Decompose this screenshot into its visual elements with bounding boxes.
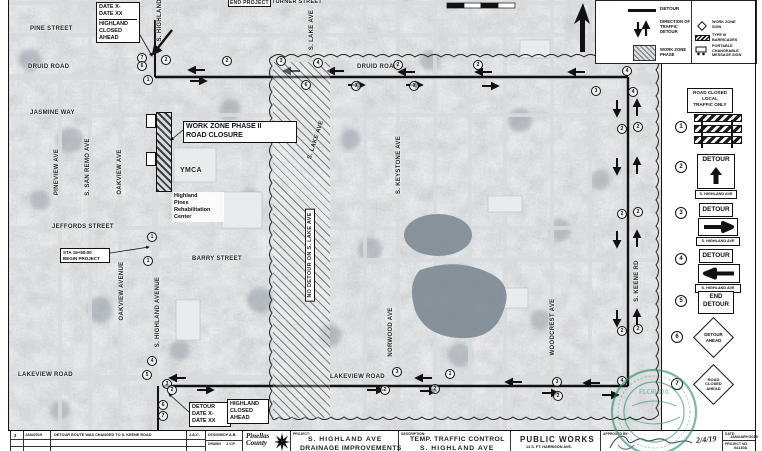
legend: DETOUR DIRECTION OF TRAFFIC DETOUR WORK … [595,0,757,64]
description-line2: S. HIGHLAND AVE [420,445,494,451]
aerial-photo [8,0,661,431]
sign-line: DETOUR [699,301,733,309]
barricade-box [146,152,156,166]
legend-direction-label: DIRECTION OF TRAFFIC DETOUR [660,19,690,34]
legend-line: MESSAGE SIGN [712,53,741,58]
right-arrow-icon [699,219,737,235]
pcms-icon [695,45,709,57]
message-sign-callout-top: DATE X- DATE XX HIGHLAND CLOSED AHEAD [96,2,140,43]
street-label-lake-top: S. LAKE AVE [309,10,315,50]
street-label-highland-south: S. HIGHLAND AVENUE [155,277,161,347]
message-sign-callout-bottom-detour: DETOUR DATE X- DATE XX [189,402,231,427]
sign-line: END [699,293,733,301]
project-line2: DRAINAGE IMPROVEMENTS [300,445,402,451]
street-label-keystone: S. KEYSTONE AVE [396,136,402,194]
begin-project-callout: STA 15+50.00 BEGIN PROJECT [60,248,110,263]
callout-line: WORK ZONE PHASE II [186,123,294,132]
work-zone-phase2-callout: WORK ZONE PHASE II ROAD CLOSURE [183,121,297,143]
sign-marker: 1 [143,75,153,85]
department-name: PUBLIC WORKS [520,435,595,444]
callout-line: AHEAD [99,35,137,42]
sign-number-7: 7 [671,378,683,390]
street-label-barry: BARRY STREET [192,256,242,262]
project-line1: S. HIGHLAND AVE [308,436,382,443]
street-label-keene: S. KEENE RD [634,260,640,302]
work-zone-sign-icon [696,20,708,32]
revision-description: DETOUR ROUTE WAS CHANGED TO S. KEENE ROA… [54,433,152,437]
sign-marker: 1 [143,256,153,266]
sign-marker: 2 [617,209,627,219]
legend-detour-label: DETOUR [660,6,679,12]
sign-marker: 3 [591,86,601,96]
sign-marker: 2 [633,324,643,334]
end-detour-sign: END DETOUR [698,291,734,314]
sign-number-4: 4 [675,253,687,265]
detour-sign: DETOUR [699,203,733,217]
drawn-label: DRAWN [208,442,221,446]
legend-pcms-label: PORTABLE CHANGEABLE MESSAGE SIGN [712,44,741,58]
project-no-value: 04130A [734,446,747,450]
ymca-label: YMCA [180,167,202,174]
sign-marker: 4 [313,58,323,68]
type3-barricade-legend-icon [695,35,710,41]
direction-arrows-icon [630,16,654,42]
street-label-sanremo: S. SAN REMO AVE [85,138,91,196]
callout-line: BEGIN PROJECT [63,256,107,262]
callout-line: Pines [174,200,222,207]
sign-marker: 1 [147,232,157,242]
detour-line-sample [628,9,656,12]
barricade-box [146,114,156,128]
sign-marker: 3 [351,81,361,91]
callout-line: Rehabilitation [174,207,222,214]
sign-marker: 3 [409,81,419,91]
revision-row-divider [10,446,205,447]
street-label-woodcrest: WOODCREST AVE [550,299,556,356]
revision-date: JAN/2019 [25,433,42,437]
work-zone-phase2-area [156,112,172,192]
sign-number-1: 1 [675,121,687,133]
sign-marker: 2 [617,124,627,134]
sign-number-3: 3 [675,207,687,219]
callout-line: CLOSED [230,408,266,415]
message-sign-callout-bottom-highland: HIGHLAND CLOSED AHEAD [227,399,269,424]
end-project-label: END PROJECT [228,0,271,7]
sign-marker: 2 [617,326,627,336]
right-arrow-sign [698,218,738,236]
traffic-control-plan-sheet: PINE STREET DRUID ROAD DRUID ROAD JASMIN… [0,0,762,451]
sign-marker: 4 [147,356,157,366]
date-value: JANUARY/2019 [730,435,758,439]
rehab-center-callout: Highland Pines Rehabilitation Center [172,192,224,222]
scale-bar [447,3,515,8]
legend-divider [691,1,692,63]
highland-ave-plaque: S. HIGHLAND AVE [696,237,740,246]
sign-number-6: 6 [671,331,683,343]
left-arrow-icon [699,265,739,282]
callout-line: AHEAD [230,415,266,422]
street-label-lakeview-west: LAKEVIEW ROAD [18,372,73,378]
callout-line: DATE XX [192,418,228,425]
sign-number-2: 2 [675,161,687,173]
callout-line: Center [174,214,222,221]
street-label-jeffords: JEFFORDS STREET [52,224,114,230]
street-label-turner: TURNER STREET [272,0,322,5]
sign-marker: 4 [622,66,632,76]
callout-line: ROAD CLOSURE [186,132,294,141]
sign-line: AHEAD [706,338,722,343]
sign-marker: 2 [393,60,403,70]
sign-marker: 4 [617,376,627,386]
sign-line: DETOUR [698,155,734,164]
sign-marker: 2 [553,391,563,401]
legend-line: BARRICADES [712,38,737,43]
sign-line: AHEAD [706,387,720,392]
sign-marker: 2 [222,56,232,66]
work-zone-hatch-sample [633,45,656,61]
sign-marker: 1 [445,369,455,379]
left-arrow-sign [698,264,740,283]
street-label-jasmine: JASMINE WAY [30,110,75,116]
legend-line: SIGN [712,25,736,30]
callout-line: DATE X- [192,411,228,418]
sign-marker: 3 [552,377,562,387]
revision-row-divider [10,439,205,440]
title-block: 3 JAN/2019 DETOUR ROUTE WAS CHANGED TO S… [8,430,755,451]
street-label-highland-top: S. HIGHLAND AVE [157,0,163,41]
sheet-left-border [8,0,9,451]
sunburst-icon [274,433,290,451]
legend-type3-label: TYPE III BARRICADES [712,33,737,42]
sign-marker: 2 [380,385,390,395]
sign-marker: 3 [276,56,286,66]
description-line1: TEMP. TRAFFIC CONTROL [410,436,505,443]
sign-marker: 2 [473,60,483,70]
pinellas-county-logo: Pinellas County [246,433,290,451]
legend-work-zone-phase-label: WORK ZONE PHASE [660,47,686,57]
street-label-lakeview-center: LAKEVIEW ROAD [330,374,385,380]
sign-marker: 6 [137,61,147,71]
drawn-value: J.V.P. [226,442,236,446]
up-arrow-icon [698,164,734,186]
sign-marker: 6 [158,400,168,410]
designed-label: DESIGNED [208,433,226,437]
street-label-oakview-s: OAKVIEW AVENUE [119,262,125,321]
road-closed-sign: ROAD CLOSED LOCAL TRAFFIC ONLY [687,88,733,113]
callout-line: DETOUR [192,404,228,411]
sign-marker: 4 [628,87,638,97]
sign-line: TRAFFIC ONLY [688,102,732,108]
sign-marker: 2 [161,55,171,65]
sign-marker: 7 [158,411,168,421]
designed-value: F.A.B. [226,433,237,437]
callout-line: HIGHLAND [230,401,266,408]
callout-line: Highland [174,193,222,200]
detour-up-sign: DETOUR [697,154,735,189]
sign-number-5: 5 [675,295,687,307]
street-label-druid-west: DRUID ROAD [28,64,69,70]
street-label-norwood: NORWOOD AVE [388,307,394,356]
legend-line: PHASE [660,52,686,57]
sign-marker: 2 [167,385,177,395]
type3-barricade-icon [694,114,740,148]
street-label-pineview: PINEVIEW AVE [54,149,60,195]
callout-line: DATE X- [99,4,137,11]
approval-date: 2/4/19 [696,434,717,445]
legend-line: WORK ZONE [712,20,736,25]
sign-marker: 2 [633,122,643,132]
legend-line: DETOUR [660,29,690,34]
sign-marker: 2 [430,384,440,394]
sign-marker: 6 [301,80,311,90]
legend-work-zone-sign-label: WORK ZONE SIGN [712,20,736,29]
highland-ave-plaque: S. HIGHLAND AVE [695,190,737,199]
revision-number: 3 [14,433,16,438]
detour-sign: DETOUR [699,249,733,263]
department-address: 14 S. FT. HARRISON AVE. [526,445,572,449]
sign-marker: 2 [633,207,643,217]
revision-by: J.A.C. [189,433,200,437]
sheet-right-border [755,0,756,451]
street-label-pine: PINE STREET [30,26,73,32]
sign-marker: 3 [392,367,402,377]
callout-line: DATE XX [99,11,137,20]
no-detour-hatched-area [273,62,330,418]
street-label-oakview-n: OAKVIEW AVE [117,149,123,194]
sign-marker: 5 [142,370,152,380]
callout-line: CLOSED [99,28,137,35]
callout-line: HIGHLAND [99,21,137,28]
no-detour-label: NO DETOUR ON S. LAKE AVE [305,208,315,301]
